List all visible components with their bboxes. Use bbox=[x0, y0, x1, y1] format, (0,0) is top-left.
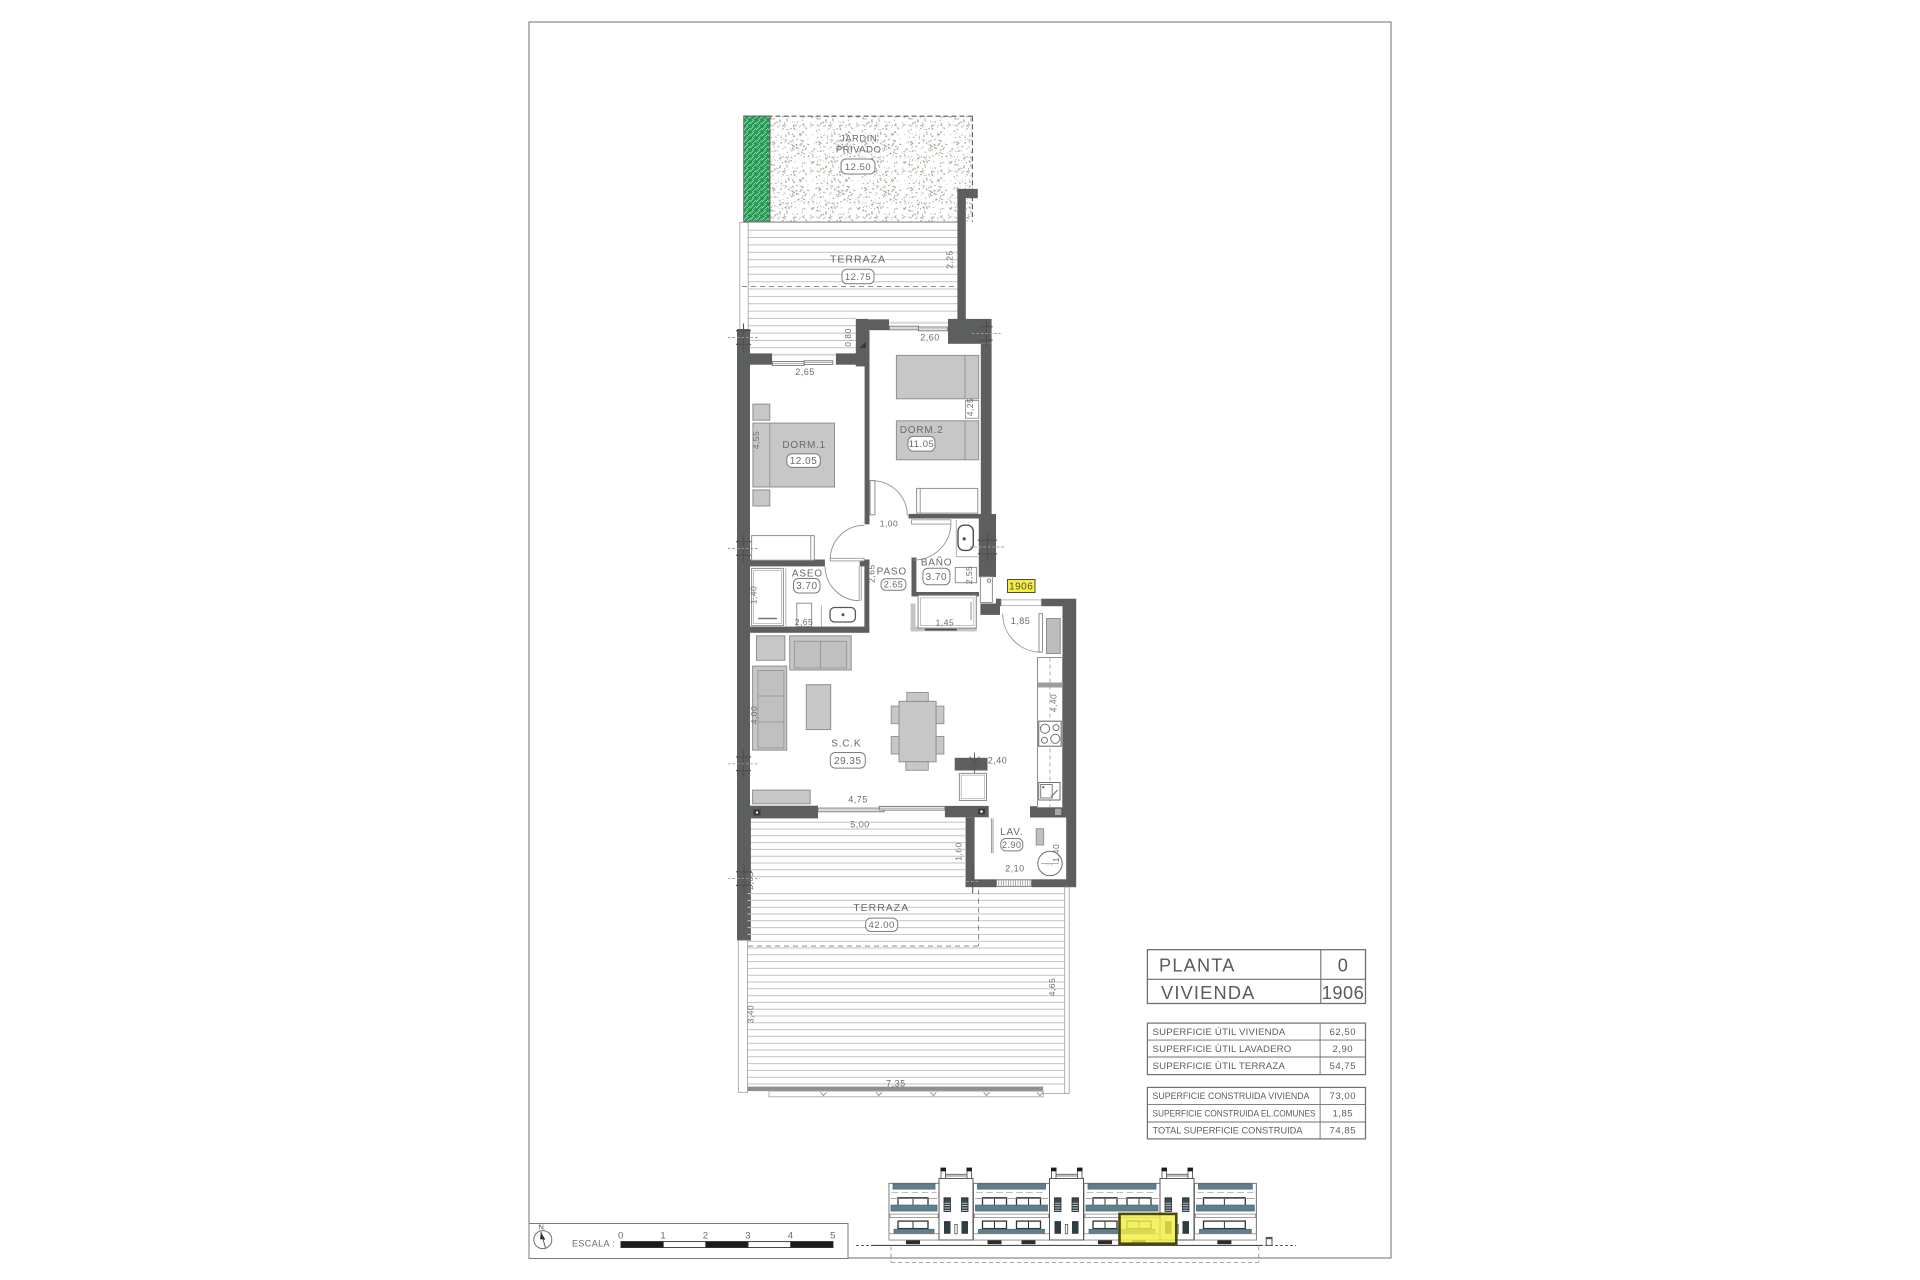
svg-text:2.90: 2.90 bbox=[1002, 840, 1022, 850]
svg-text:TERRAZA: TERRAZA bbox=[830, 254, 886, 266]
svg-text:2,65: 2,65 bbox=[867, 564, 877, 583]
svg-text:BAÑO: BAÑO bbox=[921, 556, 953, 569]
svg-text:12.05: 12.05 bbox=[790, 456, 818, 467]
svg-text:3: 3 bbox=[745, 1231, 751, 1242]
svg-text:ESCALA :: ESCALA : bbox=[572, 1239, 615, 1249]
svg-text:74,85: 74,85 bbox=[1330, 1126, 1357, 1137]
svg-text:PLANTA: PLANTA bbox=[1159, 956, 1236, 976]
svg-text:1,45: 1,45 bbox=[936, 618, 955, 628]
svg-text:TERRAZA: TERRAZA bbox=[853, 902, 909, 914]
svg-text:4,55: 4,55 bbox=[751, 431, 761, 450]
svg-text:1,60: 1,60 bbox=[954, 842, 964, 861]
svg-text:7,35: 7,35 bbox=[886, 1078, 906, 1088]
svg-text:29.35: 29.35 bbox=[834, 756, 862, 767]
svg-text:5,00: 5,00 bbox=[850, 819, 870, 829]
svg-text:1,40: 1,40 bbox=[1051, 844, 1061, 863]
svg-text:4,40: 4,40 bbox=[1048, 694, 1058, 713]
svg-text:DORM.2: DORM.2 bbox=[900, 425, 944, 436]
svg-text:42.00: 42.00 bbox=[869, 920, 895, 931]
svg-text:LAV.: LAV. bbox=[1000, 827, 1023, 838]
svg-text:2,65: 2,65 bbox=[795, 617, 814, 627]
svg-text:1,85: 1,85 bbox=[1332, 1108, 1353, 1119]
svg-text:4,00: 4,00 bbox=[749, 706, 759, 725]
svg-text:4,25: 4,25 bbox=[965, 398, 975, 417]
svg-text:12.75: 12.75 bbox=[845, 272, 871, 283]
svg-text:S.C.K: S.C.K bbox=[831, 739, 861, 750]
svg-text:2,65: 2,65 bbox=[745, 871, 755, 890]
svg-text:2,90: 2,90 bbox=[1332, 1044, 1353, 1055]
svg-text:3,40: 3,40 bbox=[746, 1005, 756, 1024]
svg-text:0: 0 bbox=[1338, 956, 1349, 976]
svg-text:1: 1 bbox=[660, 1231, 666, 1242]
svg-text:54,75: 54,75 bbox=[1330, 1061, 1357, 1072]
svg-text:N: N bbox=[539, 1223, 545, 1232]
svg-text:2,55: 2,55 bbox=[964, 566, 974, 585]
svg-text:0,80: 0,80 bbox=[843, 328, 853, 347]
svg-text:2.65: 2.65 bbox=[884, 580, 904, 590]
svg-text:SUPERFICIE ÚTIL TERRAZA: SUPERFICIE ÚTIL TERRAZA bbox=[1153, 1061, 1286, 1072]
svg-text:PASO: PASO bbox=[877, 566, 907, 577]
svg-text:ASEO: ASEO bbox=[792, 568, 823, 579]
svg-text:JARDIN: JARDIN bbox=[840, 134, 877, 145]
svg-text:3.70: 3.70 bbox=[926, 572, 947, 583]
svg-text:4: 4 bbox=[788, 1231, 794, 1242]
svg-text:1,40: 1,40 bbox=[749, 586, 759, 605]
svg-text:SUPERFICIE CONSTRUIDA EL.COMUN: SUPERFICIE CONSTRUIDA EL.COMUNES bbox=[1153, 1107, 1316, 1118]
svg-text:2,25: 2,25 bbox=[945, 250, 955, 269]
svg-text:1,85: 1,85 bbox=[1011, 616, 1031, 626]
svg-text:2,65: 2,65 bbox=[795, 367, 815, 377]
svg-text:1906: 1906 bbox=[1322, 983, 1364, 1003]
svg-text:2: 2 bbox=[703, 1231, 709, 1242]
svg-text:DORM.1: DORM.1 bbox=[782, 440, 826, 451]
svg-text:4,75: 4,75 bbox=[848, 795, 868, 805]
svg-text:SUPERFICIE ÚTIL LAVADERO: SUPERFICIE ÚTIL LAVADERO bbox=[1153, 1044, 1292, 1055]
svg-text:0: 0 bbox=[618, 1231, 624, 1242]
svg-text:4,65: 4,65 bbox=[1047, 978, 1057, 997]
svg-text:VIVIENDA: VIVIENDA bbox=[1161, 983, 1256, 1003]
svg-text:73,00: 73,00 bbox=[1330, 1091, 1357, 1102]
svg-text:2,60: 2,60 bbox=[920, 333, 940, 343]
svg-text:5: 5 bbox=[830, 1231, 836, 1242]
svg-text:PRIVADO: PRIVADO bbox=[836, 145, 882, 156]
svg-text:SUPERFICIE CONSTRUIDA VIVIENDA: SUPERFICIE CONSTRUIDA VIVIENDA bbox=[1153, 1090, 1311, 1101]
svg-text:TOTAL SUPERFICIE CONSTRUIDA: TOTAL SUPERFICIE CONSTRUIDA bbox=[1153, 1125, 1304, 1136]
svg-text:62,50: 62,50 bbox=[1330, 1027, 1357, 1038]
svg-text:3.70: 3.70 bbox=[796, 581, 817, 592]
svg-text:2,40: 2,40 bbox=[988, 756, 1008, 766]
svg-text:1,00: 1,00 bbox=[880, 519, 899, 529]
svg-text:12.50: 12.50 bbox=[845, 162, 871, 173]
svg-text:11.05: 11.05 bbox=[909, 439, 935, 450]
svg-text:SUPERFICIE ÚTIL VIVIENDA: SUPERFICIE ÚTIL VIVIENDA bbox=[1153, 1027, 1286, 1038]
svg-text:2,10: 2,10 bbox=[1005, 864, 1025, 874]
svg-text:1906: 1906 bbox=[1009, 582, 1033, 593]
